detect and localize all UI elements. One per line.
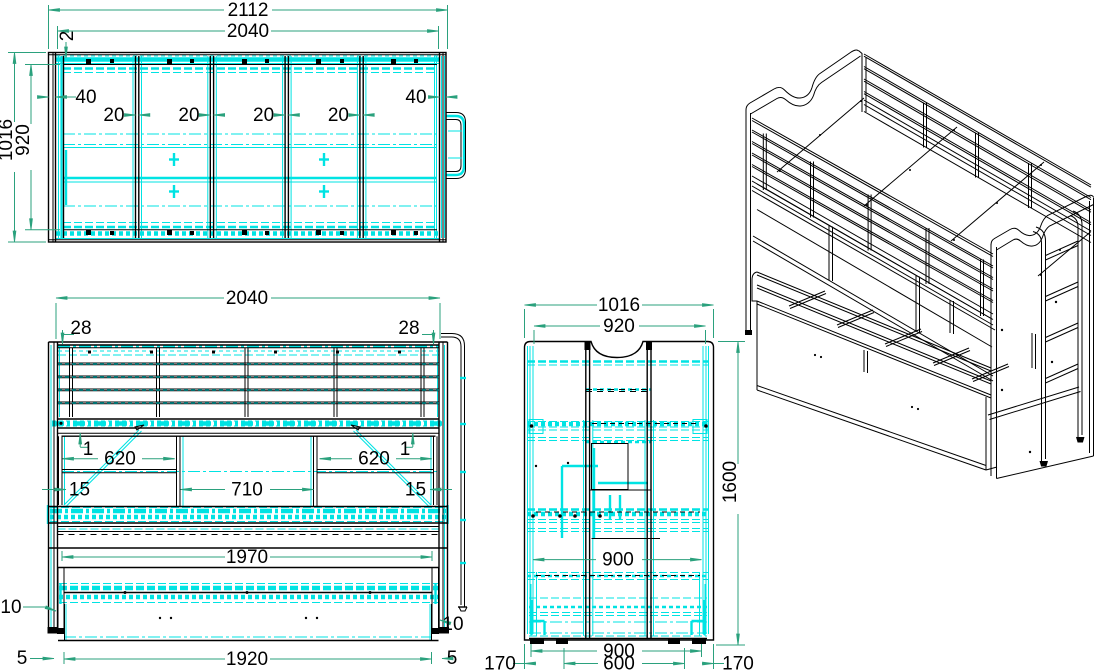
svg-text:40: 40: [75, 87, 96, 108]
svg-text:28: 28: [70, 318, 91, 339]
svg-text:15: 15: [69, 480, 90, 501]
svg-text:40: 40: [405, 87, 426, 108]
svg-text:10: 10: [0, 597, 21, 618]
svg-text:2040: 2040: [226, 288, 268, 309]
svg-text:1: 1: [83, 439, 94, 460]
svg-text:920: 920: [13, 124, 34, 156]
svg-text:28: 28: [398, 318, 419, 339]
svg-text:1: 1: [400, 439, 411, 460]
svg-text:710: 710: [231, 480, 263, 501]
svg-text:920: 920: [603, 316, 635, 337]
svg-text:5: 5: [447, 648, 458, 669]
svg-text:5: 5: [17, 648, 28, 669]
svg-text:1600: 1600: [720, 461, 741, 503]
svg-text:20: 20: [103, 105, 124, 126]
svg-text:170: 170: [484, 654, 516, 672]
svg-text:2040: 2040: [227, 21, 269, 42]
svg-text:1016: 1016: [598, 295, 640, 316]
svg-text:20: 20: [253, 105, 274, 126]
svg-text:170: 170: [722, 654, 754, 672]
svg-text:20: 20: [328, 105, 349, 126]
svg-text:620: 620: [104, 449, 136, 470]
svg-text:15: 15: [405, 480, 426, 501]
svg-text:1970: 1970: [226, 547, 268, 568]
svg-text:1920: 1920: [226, 649, 268, 670]
svg-text:20: 20: [178, 105, 199, 126]
svg-text:600: 600: [603, 654, 635, 672]
svg-text:2: 2: [57, 31, 78, 42]
svg-text:2112: 2112: [228, 0, 269, 21]
svg-text:620: 620: [358, 449, 390, 470]
svg-text:10: 10: [442, 614, 463, 635]
svg-text:900: 900: [602, 550, 634, 571]
